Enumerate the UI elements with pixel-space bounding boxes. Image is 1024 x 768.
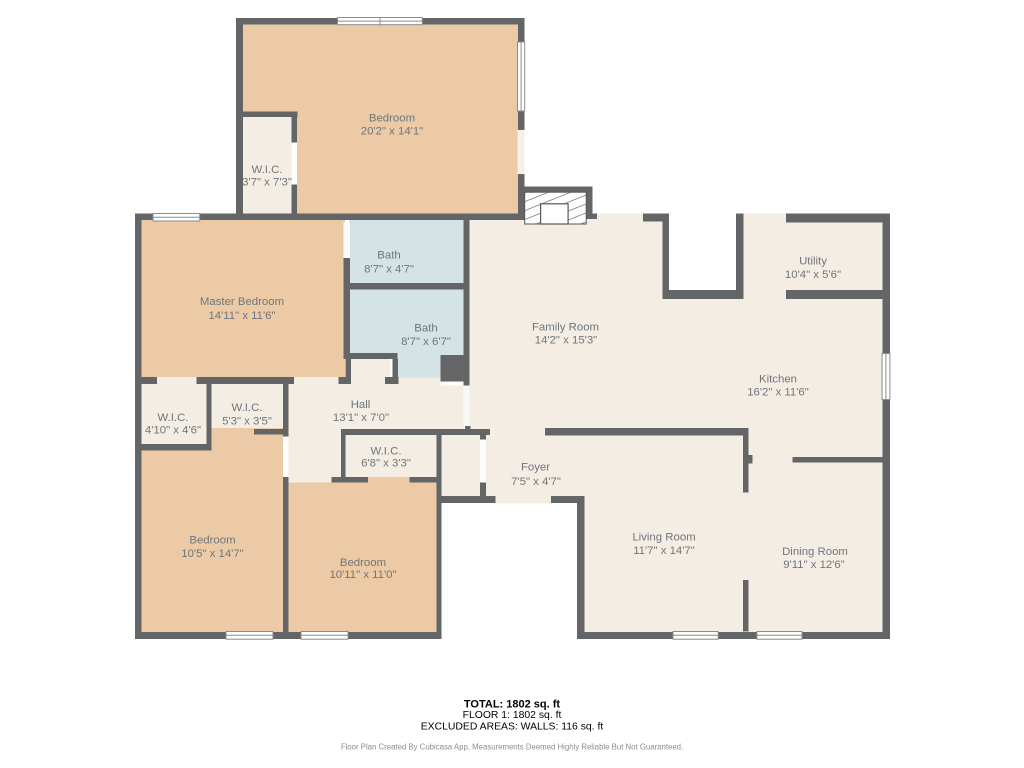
svg-text:8'7" x 6'7": 8'7" x 6'7"	[401, 336, 451, 348]
svg-text:W.I.C.: W.I.C.	[251, 164, 282, 176]
svg-text:FLOOR 1: 1802 sq. ft: FLOOR 1: 1802 sq. ft	[463, 710, 562, 721]
svg-text:Bedroom: Bedroom	[189, 535, 235, 547]
svg-text:16'2" x 11'6": 16'2" x 11'6"	[747, 387, 809, 399]
svg-text:Family Room: Family Room	[532, 322, 599, 334]
svg-text:10'11" x 11'0": 10'11" x 11'0"	[329, 569, 396, 581]
svg-text:10'5" x 14'7": 10'5" x 14'7"	[181, 548, 243, 560]
svg-text:Hall: Hall	[351, 399, 371, 411]
svg-text:Bedroom: Bedroom	[340, 557, 386, 569]
svg-text:13'1" x 7'0": 13'1" x 7'0"	[333, 412, 389, 424]
svg-text:7'5" x 4'7": 7'5" x 4'7"	[511, 476, 561, 488]
svg-text:Dining Room: Dining Room	[782, 546, 848, 558]
svg-text:14'11" x 11'6": 14'11" x 11'6"	[208, 310, 275, 322]
svg-text:Bedroom: Bedroom	[369, 113, 415, 125]
svg-text:Utility: Utility	[799, 256, 827, 268]
svg-text:14'2" x 15'3": 14'2" x 15'3"	[535, 335, 597, 347]
svg-text:W.I.C.: W.I.C.	[231, 402, 262, 414]
svg-text:6'8" x 3'3": 6'8" x 3'3"	[361, 458, 411, 470]
svg-text:Floor Plan Created By Cubicasa: Floor Plan Created By Cubicasa App, Meas…	[341, 743, 683, 752]
svg-text:Living Room: Living Room	[632, 532, 695, 544]
svg-text:Master Bedroom: Master Bedroom	[200, 296, 284, 308]
svg-text:TOTAL: 1802 sq. ft: TOTAL: 1802 sq. ft	[464, 698, 561, 710]
svg-text:W.I.C.: W.I.C.	[370, 446, 401, 458]
svg-text:9'11" x 12'6": 9'11" x 12'6"	[783, 559, 845, 571]
svg-text:Bath: Bath	[377, 250, 400, 262]
svg-text:10'4" x 5'6": 10'4" x 5'6"	[785, 269, 841, 281]
svg-text:Bath: Bath	[414, 323, 437, 335]
svg-text:EXCLUDED AREAS: WALLS: 116 sq.: EXCLUDED AREAS: WALLS: 116 sq. ft	[421, 722, 604, 733]
svg-text:20'2" x 14'1": 20'2" x 14'1"	[361, 126, 423, 138]
svg-text:8'7" x 4'7": 8'7" x 4'7"	[364, 264, 414, 276]
svg-text:Foyer: Foyer	[521, 462, 550, 474]
svg-text:5'3" x 3'5": 5'3" x 3'5"	[222, 416, 272, 428]
svg-text:3'7" x 7'3": 3'7" x 7'3"	[242, 177, 292, 189]
svg-text:Kitchen: Kitchen	[759, 373, 797, 385]
svg-text:4'10" x 4'6": 4'10" x 4'6"	[145, 425, 201, 437]
svg-text:11'7" x 14'7": 11'7" x 14'7"	[633, 545, 695, 557]
svg-text:W.I.C.: W.I.C.	[157, 412, 188, 424]
